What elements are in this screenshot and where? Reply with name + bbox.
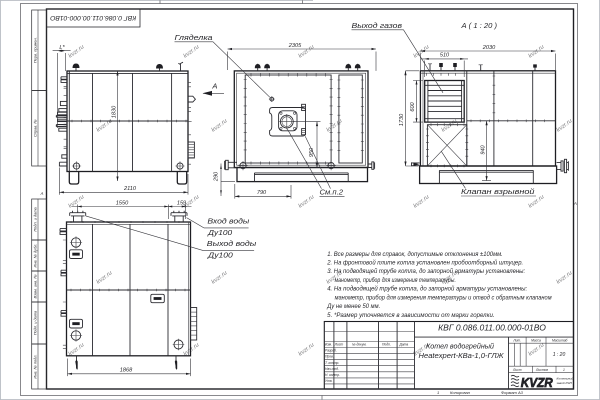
svg-text:Перв. примен.: Перв. примен.	[32, 37, 37, 63]
svg-text:2030: 2030	[482, 45, 496, 51]
svg-text:1: 1	[563, 368, 565, 372]
svg-text:Гляделка: Гляделка	[175, 34, 213, 42]
svg-text:1 : 20: 1 : 20	[553, 352, 566, 358]
svg-text:5. *Размер уточняется в зависи: 5. *Размер уточняется в зависимости от м…	[327, 313, 494, 319]
svg-text:L*: L*	[59, 45, 65, 51]
svg-text:Лит.: Лит.	[512, 339, 521, 343]
svg-text:Дата: Дата	[399, 342, 409, 346]
svg-text:См.п.2: См.п.2	[320, 190, 344, 197]
svg-text:950: 950	[309, 147, 315, 157]
svg-text:Утв.: Утв.	[325, 379, 333, 383]
svg-text:Нач.отд.: Нач.отд.	[325, 367, 339, 371]
svg-text:290: 290	[214, 171, 220, 182]
svg-text:А: А	[573, 201, 577, 206]
svg-text:КВГ 0.086.011.00.000-01ВО: КВГ 0.086.011.00.000-01ВО	[438, 322, 546, 332]
svg-text:Котел водогрейный: Котел водогрейный	[426, 341, 494, 350]
svg-text:1550: 1550	[116, 200, 129, 206]
svg-text:Взам. инв. №: Взам. инв. №	[32, 274, 37, 299]
svg-text:Листов: Листов	[535, 368, 548, 372]
svg-text:Инв. № дубл.: Инв. № дубл.	[32, 244, 37, 268]
svg-text:790: 790	[257, 190, 267, 196]
svg-text:1830: 1830	[112, 105, 118, 118]
svg-text:А ( 1 : 20 ): А ( 1 : 20 )	[460, 23, 497, 30]
svg-text:Ду не менее 50 мм.: Ду не менее 50 мм.	[326, 304, 380, 310]
svg-text:4. На подводящей трубе котла,: 4. На подводящей трубе котла, до запорно…	[327, 286, 527, 293]
svg-text:Лист: Лист	[334, 342, 344, 346]
svg-text:1730: 1730	[399, 113, 405, 126]
svg-text:Т. контр.: Т. контр.	[325, 361, 339, 365]
svg-text:КВГ 0.086.011.00.000-01ВО: КВГ 0.086.011.00.000-01ВО	[50, 14, 136, 21]
svg-text:3. На подводящей трубе котла,: 3. На подводящей трубе котла, до запорно…	[327, 268, 525, 275]
svg-text:940: 940	[480, 144, 486, 154]
svg-text:2305: 2305	[288, 43, 302, 49]
svg-text:Изм.: Изм.	[325, 342, 332, 346]
svg-text:А: А	[211, 82, 217, 91]
svg-text:Лист: Лист	[512, 368, 522, 372]
svg-text:А: А	[40, 191, 44, 196]
svg-text:Котельный: Котельный	[557, 377, 574, 381]
svg-text:Подп. и дата: Подп. и дата	[32, 206, 37, 231]
svg-text:манометр, прибор для измерения: манометр, прибор для измерения температу…	[335, 278, 456, 284]
svg-text:Разраб.: Разраб.	[325, 349, 337, 353]
svg-text:манометр, прибор для измерения: манометр, прибор для измерения температу…	[335, 295, 552, 301]
svg-text:Н. контр.: Н. контр.	[325, 373, 340, 377]
svg-text:Справ. №: Справ. №	[32, 119, 37, 137]
svg-text:2110: 2110	[123, 186, 137, 192]
svg-text:Ду100: Ду100	[207, 251, 233, 260]
svg-text:Формат А3: Формат А3	[501, 390, 524, 395]
svg-text:Выход газов: Выход газов	[352, 22, 403, 30]
svg-text:510: 510	[440, 53, 450, 59]
svg-text:Масса: Масса	[531, 339, 541, 343]
svg-text:2. На фронтовой плите котла ус: 2. На фронтовой плите котла установлен п…	[326, 260, 523, 267]
svg-text:Клапан взрывной: Клапан взрывной	[461, 188, 535, 196]
svg-text:Пров.: Пров.	[325, 355, 334, 359]
svg-text:Копировал: Копировал	[450, 390, 471, 395]
svg-text:Инв. № подл.: Инв. № подл.	[32, 354, 37, 378]
svg-text:Выход воды: Выход воды	[207, 239, 257, 248]
svg-text:600: 600	[410, 101, 416, 111]
svg-text:завод РЭП: завод РЭП	[556, 381, 573, 385]
svg-text:KVZR: KVZR	[521, 375, 554, 390]
svg-text:1: 1	[437, 390, 439, 395]
svg-text:1. Все размеры для справок, до: 1. Все размеры для справок, допустимые о…	[327, 252, 503, 258]
svg-text:Подп. и дата: Подп. и дата	[32, 310, 37, 335]
svg-text:Вход воды: Вход воды	[207, 216, 250, 225]
svg-text:№ докум.: № докум.	[352, 342, 367, 346]
svg-text:Подп.: Подп.	[382, 342, 391, 346]
svg-text:159: 159	[177, 200, 186, 206]
svg-text:1868: 1868	[120, 368, 133, 374]
svg-text:Heatexpert-КВа-1,0-ГЛЖ: Heatexpert-КВа-1,0-ГЛЖ	[419, 351, 504, 360]
svg-text:Ду100: Ду100	[207, 228, 232, 237]
svg-text:Масштаб: Масштаб	[552, 339, 568, 343]
